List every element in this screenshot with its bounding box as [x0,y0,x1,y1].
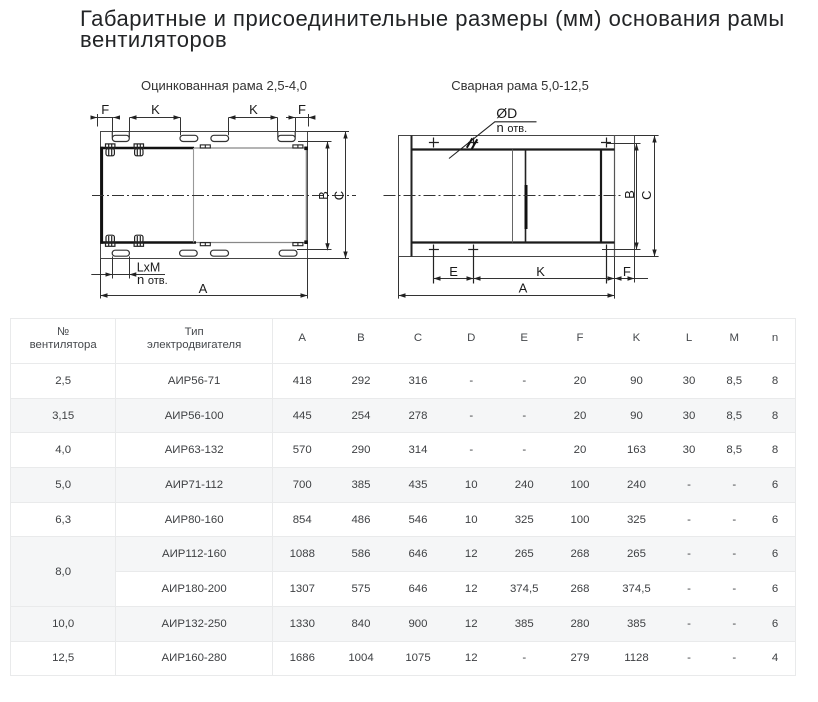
svg-text:K: K [249,102,258,117]
svg-text:Оцинкованная рама 2,5-4,0: Оцинкованная рама 2,5-4,0 [141,78,307,93]
svg-text:Сварная рама 5,0-12,5: Сварная рама 5,0-12,5 [451,78,589,93]
svg-text:n отв.: n отв. [497,120,528,135]
svg-text:E: E [449,264,458,279]
svg-text:C: C [332,191,347,200]
svg-text:A: A [519,281,528,296]
svg-text:F: F [623,264,631,279]
svg-text:A: A [199,281,208,296]
svg-text:B: B [316,191,331,200]
svg-text:B: B [622,190,637,199]
svg-text:F: F [298,102,306,117]
svg-text:K: K [536,264,545,279]
svg-text:C: C [639,191,654,200]
svg-text:F: F [101,102,109,117]
svg-text:n отв.: n отв. [137,272,168,287]
svg-text:K: K [151,102,160,117]
svg-text:ØD: ØD [496,105,517,121]
